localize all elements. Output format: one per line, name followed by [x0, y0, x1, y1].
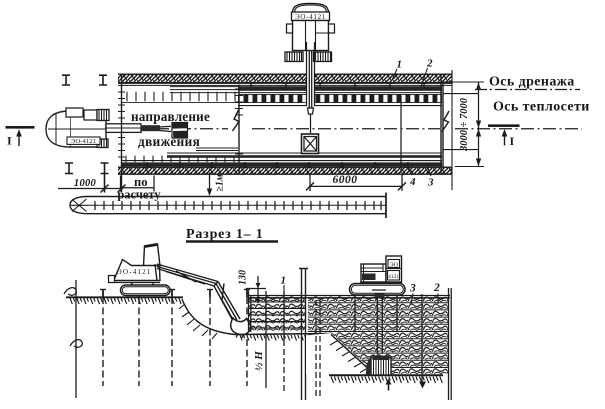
svg-text:2: 2 [426, 58, 433, 70]
svg-text:направление: направление [131, 109, 210, 124]
svg-text:3000 ÷ 7000: 3000 ÷ 7000 [459, 97, 470, 152]
svg-text:ЭО-4121: ЭО-4121 [295, 13, 326, 21]
svg-text:3: 3 [409, 283, 416, 295]
svg-text:4121: 4121 [388, 274, 399, 280]
svg-text:Ось теплосети: Ось теплосети [493, 100, 590, 115]
svg-text:1000: 1000 [74, 178, 97, 189]
svg-text:≥1м: ≥1м [215, 174, 226, 191]
svg-text:Разрез 1– 1: Разрез 1– 1 [186, 227, 264, 242]
svg-text:2: 2 [433, 282, 440, 294]
svg-text:½ Н: ½ Н [253, 351, 265, 371]
svg-text:движения: движения [138, 134, 200, 149]
svg-text:расчету: расчету [117, 188, 161, 202]
svg-text:I: I [7, 134, 12, 148]
svg-text:Ось дренажа: Ось дренажа [489, 75, 575, 90]
svg-text:ЭО: ЭО [390, 261, 399, 268]
svg-text:1: 1 [397, 59, 403, 71]
svg-text:1: 1 [281, 275, 287, 287]
svg-text:ЭО-4121: ЭО-4121 [117, 268, 152, 276]
svg-text:6000: 6000 [333, 174, 358, 186]
svg-text:ЭО-4121: ЭО-4121 [71, 138, 96, 145]
svg-text:4: 4 [409, 176, 416, 188]
svg-text:3: 3 [427, 177, 434, 189]
svg-text:I: I [510, 134, 515, 148]
svg-text:130: 130 [238, 270, 249, 285]
